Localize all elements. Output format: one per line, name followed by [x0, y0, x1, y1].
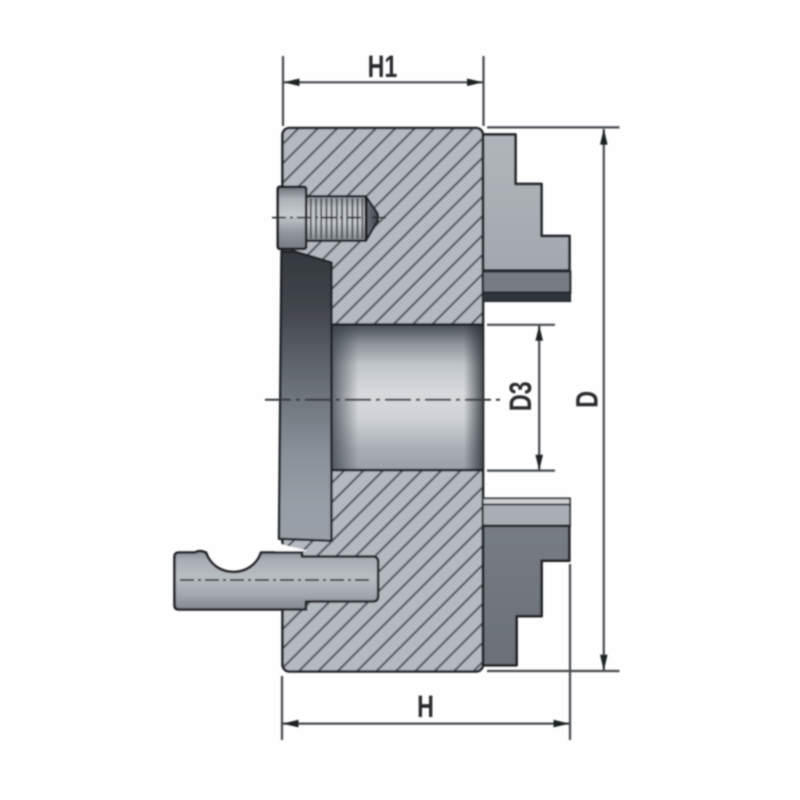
svg-text:H: H [417, 689, 434, 724]
svg-text:D: D [570, 391, 605, 408]
svg-text:H1: H1 [368, 49, 398, 84]
svg-text:D3: D3 [503, 381, 538, 411]
